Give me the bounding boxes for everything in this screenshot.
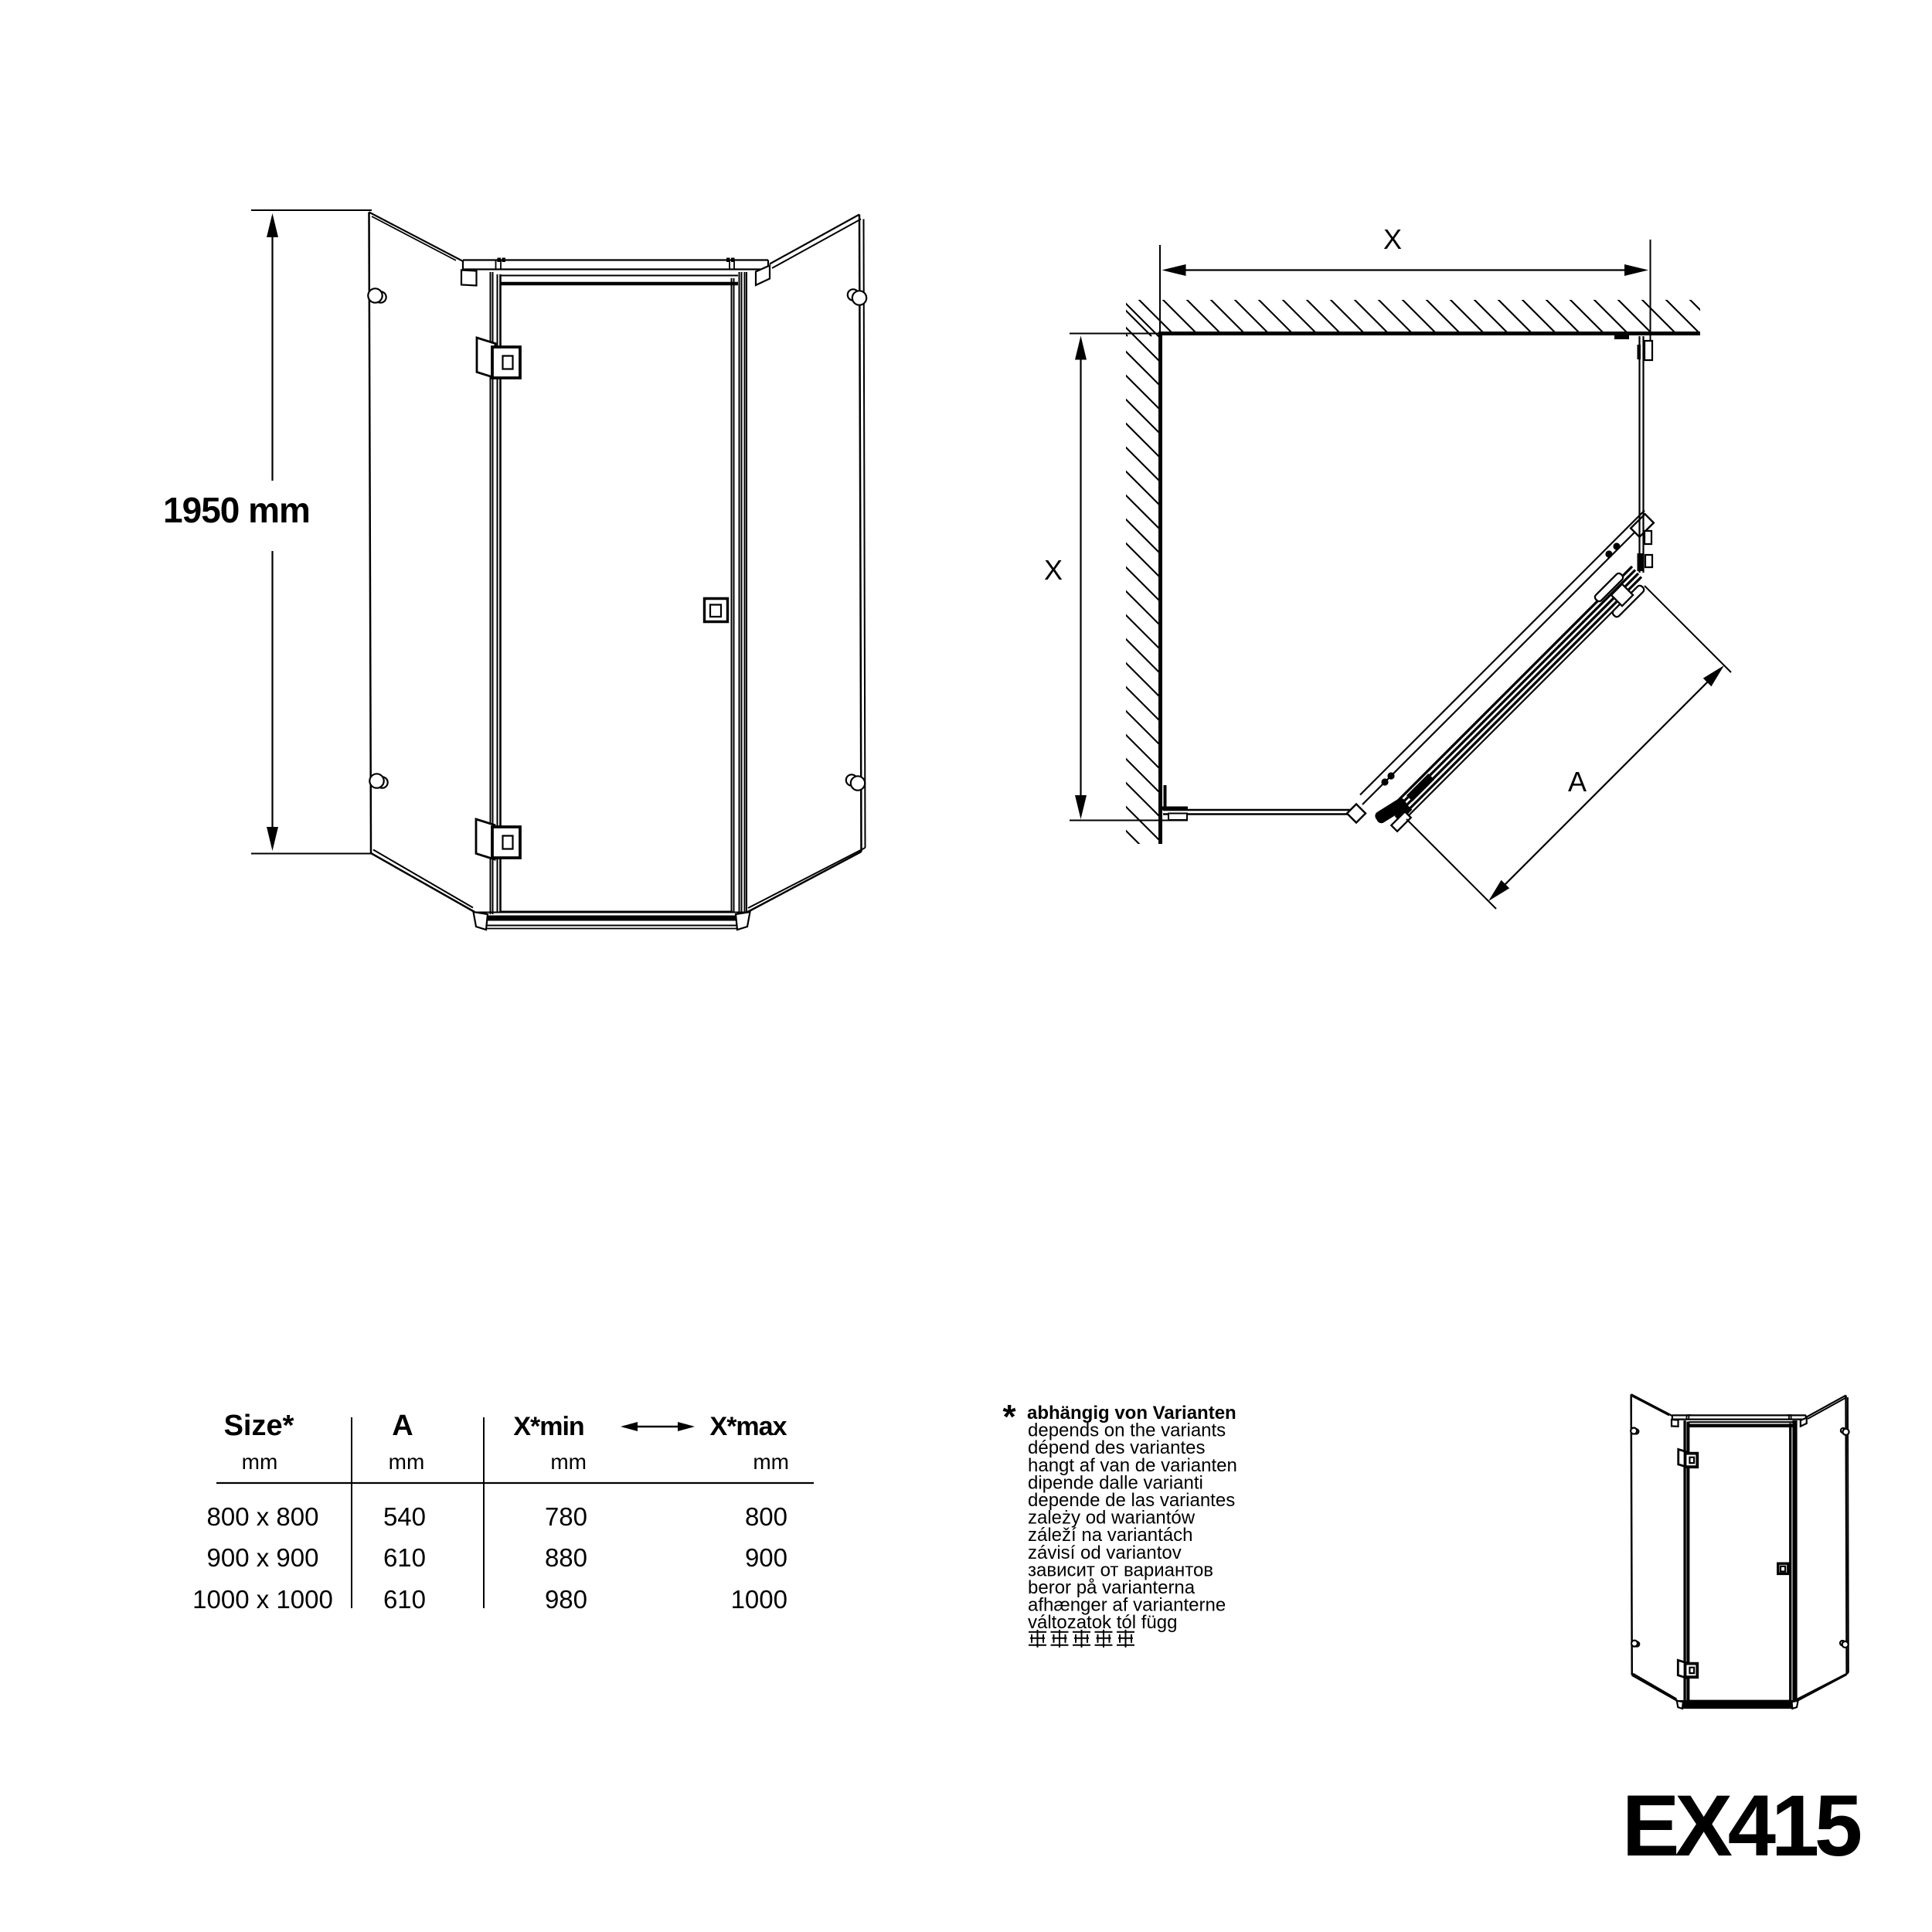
- svg-text:mm: mm: [753, 1450, 789, 1474]
- svg-text:X: X: [1383, 223, 1402, 255]
- svg-text:mm: mm: [550, 1450, 587, 1474]
- svg-text:*: *: [1002, 1398, 1016, 1436]
- svg-text:X*min: X*min: [513, 1412, 583, 1441]
- svg-text:X: X: [1044, 554, 1063, 586]
- svg-text:880: 880: [545, 1543, 587, 1572]
- svg-text:EX415: EX415: [1622, 1777, 1861, 1874]
- svg-text:mm: mm: [242, 1450, 278, 1474]
- svg-text:900: 900: [745, 1543, 787, 1572]
- svg-text:610: 610: [383, 1585, 426, 1614]
- svg-text:980: 980: [545, 1585, 587, 1614]
- svg-text:Size*: Size*: [224, 1410, 294, 1442]
- svg-text:1950 mm: 1950 mm: [163, 490, 310, 530]
- svg-text:változatok tól függ: változatok tól függ: [1028, 1612, 1177, 1633]
- svg-text:A: A: [1568, 766, 1587, 798]
- svg-text:A: A: [392, 1410, 413, 1442]
- svg-text:1000 x 1000: 1000 x 1000: [192, 1585, 333, 1614]
- svg-text:540: 540: [383, 1502, 426, 1531]
- svg-text:610: 610: [383, 1543, 426, 1572]
- svg-text:800: 800: [745, 1502, 787, 1531]
- svg-text:X*max: X*max: [710, 1412, 787, 1441]
- svg-text:900 x 900: 900 x 900: [207, 1543, 319, 1572]
- svg-text:800 x 800: 800 x 800: [207, 1502, 319, 1531]
- svg-text:780: 780: [545, 1502, 587, 1531]
- svg-text:mm: mm: [389, 1450, 425, 1474]
- svg-text:1000: 1000: [731, 1585, 787, 1614]
